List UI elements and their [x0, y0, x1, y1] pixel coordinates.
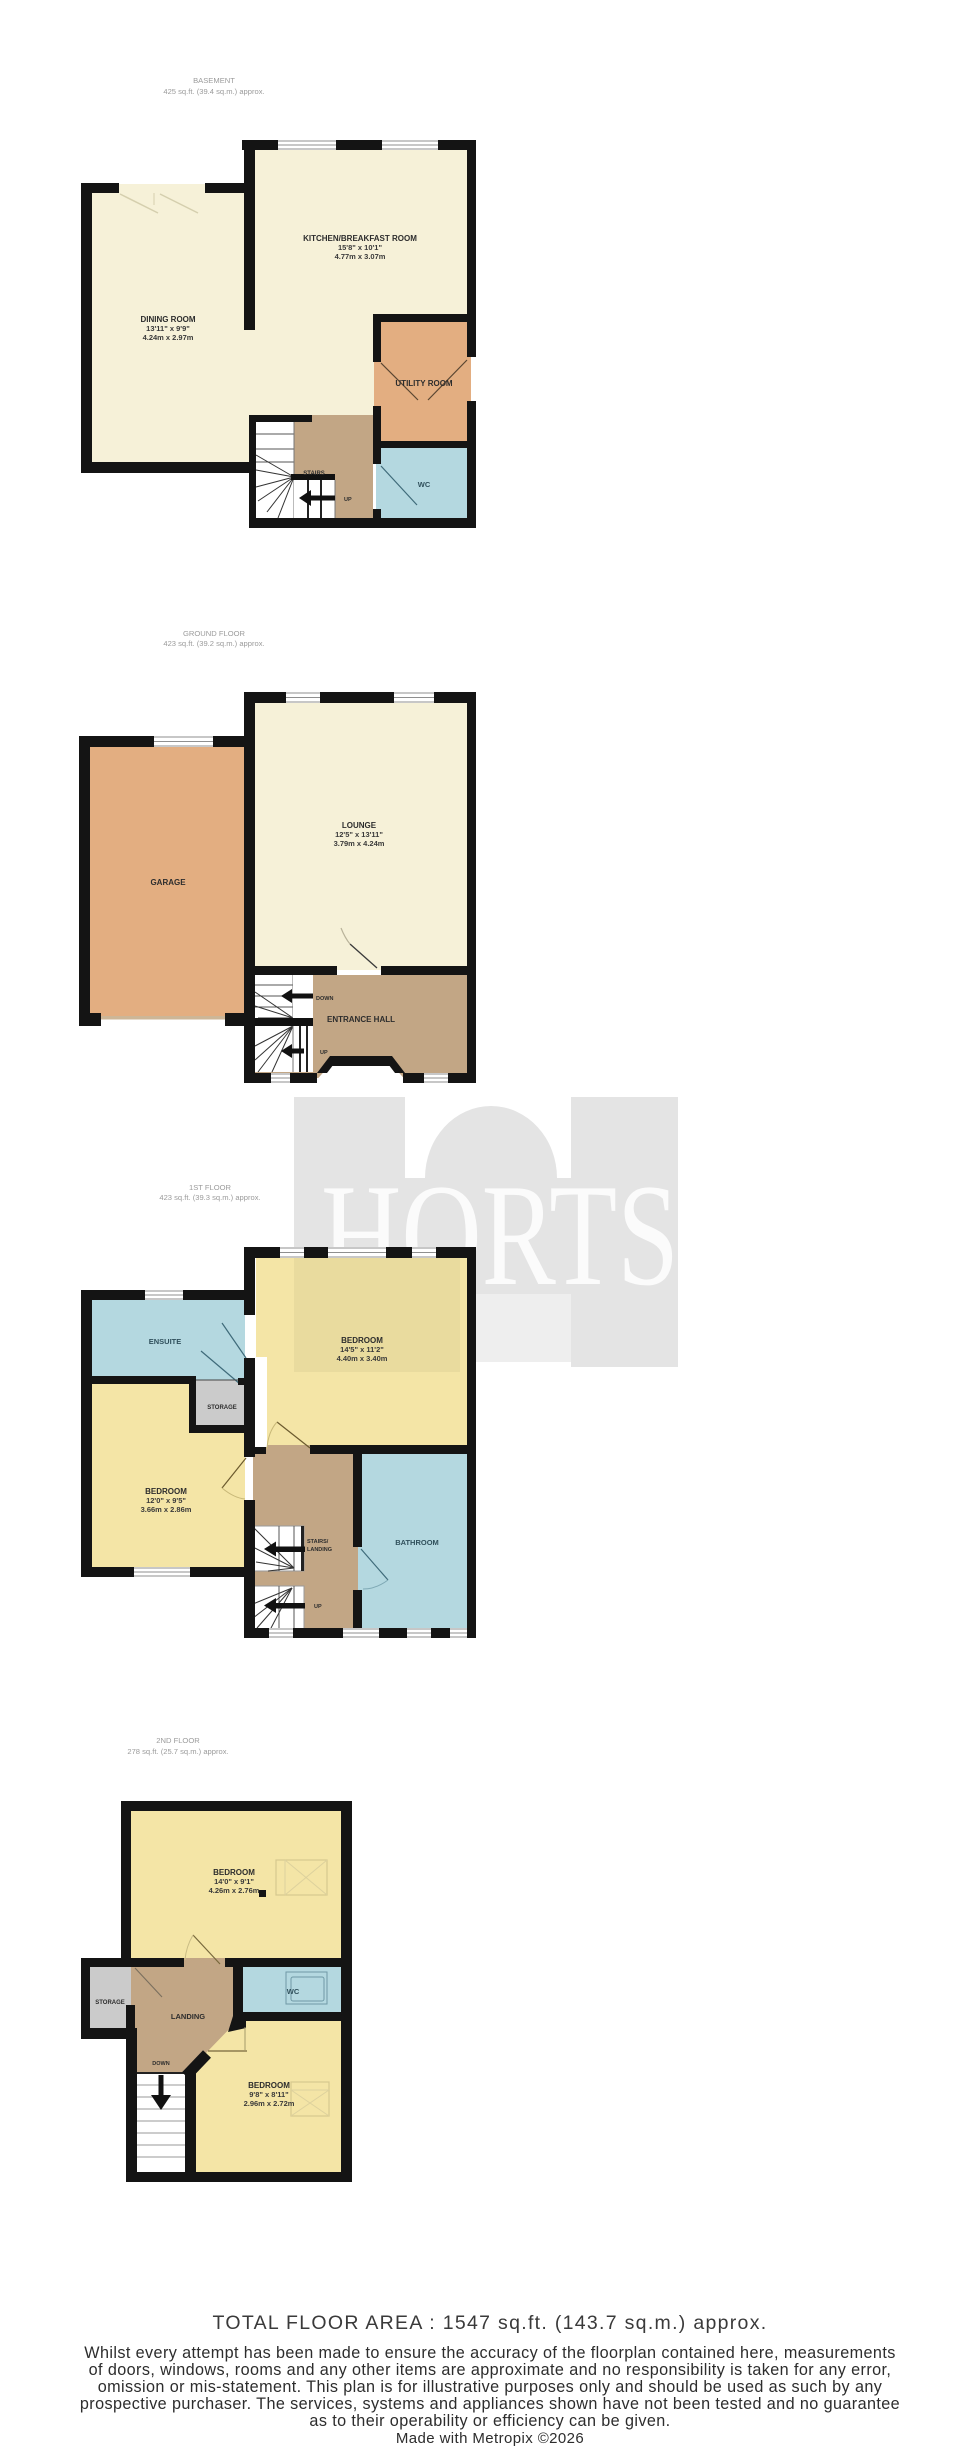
svg-text:423 sq.ft. (39.2 sq.m.) approx: 423 sq.ft. (39.2 sq.m.) approx. — [163, 639, 264, 648]
svg-text:423 sq.ft. (39.3 sq.m.) approx: 423 sq.ft. (39.3 sq.m.) approx. — [159, 1193, 260, 1202]
svg-text:DOWN: DOWN — [316, 996, 333, 1002]
svg-text:STORAGE: STORAGE — [95, 2000, 125, 2006]
svg-text:UP: UP — [344, 497, 352, 503]
svg-text:as to their operability or eff: as to their operability or efficiency ca… — [309, 2412, 670, 2430]
svg-text:ENSUITE: ENSUITE — [149, 1337, 182, 1346]
svg-text:STAIRS/: STAIRS/ — [307, 1539, 329, 1545]
svg-text:13'11" x 9'9": 13'11" x 9'9" — [146, 324, 190, 333]
svg-text:278 sq.ft. (25.7 sq.m.) approx: 278 sq.ft. (25.7 sq.m.) approx. — [127, 1747, 228, 1756]
svg-text:4.26m x 2.76m: 4.26m x 2.76m — [209, 1886, 260, 1895]
svg-text:BASEMENT: BASEMENT — [193, 76, 235, 85]
svg-text:prospective purchaser. The ser: prospective purchaser. The services, sys… — [80, 2395, 900, 2413]
svg-text:LOUNGE: LOUNGE — [342, 821, 377, 830]
svg-text:BATHROOM: BATHROOM — [395, 1538, 439, 1547]
svg-text:STAIRS: STAIRS — [303, 471, 325, 477]
svg-text:2.96m x 2.72m: 2.96m x 2.72m — [244, 2099, 295, 2108]
svg-text:UP: UP — [320, 1050, 328, 1056]
svg-text:425 sq.ft. (39.4 sq.m.) approx: 425 sq.ft. (39.4 sq.m.) approx. — [163, 87, 264, 96]
svg-text:Whilst every attempt has been: Whilst every attempt has been made to en… — [84, 2344, 895, 2362]
svg-text:1ST FLOOR: 1ST FLOOR — [189, 1183, 232, 1192]
svg-text:UTILITY ROOM: UTILITY ROOM — [395, 379, 453, 388]
svg-text:BEDROOM: BEDROOM — [213, 1868, 255, 1877]
svg-text:DINING ROOM: DINING ROOM — [140, 315, 195, 324]
svg-text:BEDROOM: BEDROOM — [145, 1487, 187, 1496]
svg-text:WC: WC — [287, 1987, 300, 1996]
svg-text:WC: WC — [418, 480, 431, 489]
svg-text:4.77m x 3.07m: 4.77m x 3.07m — [335, 252, 386, 261]
svg-text:DOWN: DOWN — [152, 2061, 169, 2067]
svg-text:LANDING: LANDING — [307, 1547, 332, 1553]
svg-text:12'5" x 13'11": 12'5" x 13'11" — [335, 830, 383, 839]
svg-text:15'8" x 10'1": 15'8" x 10'1" — [338, 243, 382, 252]
svg-text:omission or mis-statement. Thi: omission or mis-statement. This plan is … — [98, 2378, 883, 2396]
svg-text:LANDING: LANDING — [171, 2012, 205, 2021]
svg-text:14'5" x 11'2": 14'5" x 11'2" — [340, 1345, 384, 1354]
svg-text:TOTAL FLOOR AREA : 1547 sq.ft.: TOTAL FLOOR AREA : 1547 sq.ft. (143.7 sq… — [213, 2312, 768, 2334]
svg-text:Made with Metropix ©2026: Made with Metropix ©2026 — [396, 2430, 584, 2447]
svg-text:3.79m x 4.24m: 3.79m x 4.24m — [334, 839, 385, 848]
svg-text:2ND FLOOR: 2ND FLOOR — [156, 1736, 200, 1745]
svg-text:3.66m x 2.86m: 3.66m x 2.86m — [141, 1505, 192, 1514]
svg-text:4.40m x 3.40m: 4.40m x 3.40m — [337, 1354, 388, 1363]
svg-text:STORAGE: STORAGE — [207, 1405, 237, 1411]
svg-text:9'8" x 8'11": 9'8" x 8'11" — [249, 2090, 289, 2099]
svg-text:ENTRANCE HALL: ENTRANCE HALL — [327, 1015, 395, 1024]
svg-text:12'0" x 9'5": 12'0" x 9'5" — [146, 1496, 186, 1505]
svg-text:KITCHEN/BREAKFAST ROOM: KITCHEN/BREAKFAST ROOM — [303, 234, 417, 243]
svg-text:GROUND FLOOR: GROUND FLOOR — [183, 629, 246, 638]
svg-text:4.24m x 2.97m: 4.24m x 2.97m — [143, 333, 194, 342]
svg-text:14'0" x 9'1": 14'0" x 9'1" — [214, 1877, 254, 1886]
svg-text:GARAGE: GARAGE — [150, 878, 186, 887]
svg-text:BEDROOM: BEDROOM — [341, 1336, 383, 1345]
svg-text:BEDROOM: BEDROOM — [248, 2081, 290, 2090]
svg-text:UP: UP — [314, 1604, 322, 1610]
svg-text:of doors, windows, rooms and a: of doors, windows, rooms and any other i… — [89, 2361, 892, 2379]
